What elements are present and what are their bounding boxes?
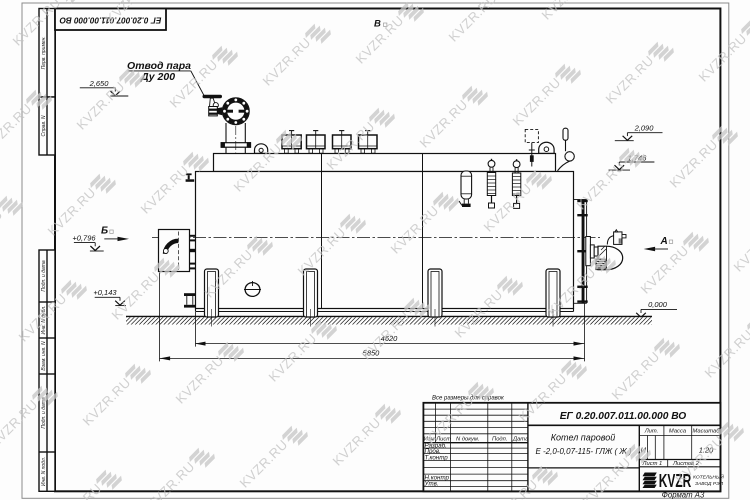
svg-text:KVZR.RU: KVZR.RU <box>0 397 41 451</box>
svg-text:KVZR.RU: KVZR.RU <box>109 269 163 323</box>
svg-text:Масса: Масса <box>669 429 687 435</box>
svg-text:KVZR.RU: KVZR.RU <box>138 163 192 217</box>
svg-text:Б: Б <box>101 226 108 237</box>
svg-text:Формат А3: Формат А3 <box>662 491 705 500</box>
svg-text:2,650: 2,650 <box>89 79 110 88</box>
svg-text:Подп. и дата: Подп. и дата <box>41 260 47 292</box>
svg-text:KVZR.RU: KVZR.RU <box>696 31 750 85</box>
svg-text:Лист 1: Лист 1 <box>642 461 663 467</box>
svg-text:KVZR.RU: KVZR.RU <box>266 331 320 385</box>
svg-text:Утв.: Утв. <box>424 481 439 488</box>
svg-text:KVZR.RU: KVZR.RU <box>0 207 6 261</box>
svg-text:Справ. N: Справ. N <box>41 115 47 136</box>
svg-text:ЕГ 0.20.007.011.00.000 ВО: ЕГ 0.20.007.011.00.000 ВО <box>560 411 687 422</box>
svg-text:KVZR.RU: KVZR.RU <box>702 327 750 381</box>
svg-text:KVZR.RU: KVZR.RU <box>510 75 564 129</box>
svg-text:KVZR.RU: KVZR.RU <box>731 221 750 275</box>
svg-text:KVZR.RU: KVZR.RU <box>80 375 134 429</box>
svg-text:KVZR.RU: KVZR.RU <box>0 101 35 155</box>
svg-text:KVZR.RU: KVZR.RU <box>667 137 721 191</box>
svg-text:KVZR.RU: KVZR.RU <box>574 159 628 213</box>
svg-text:KVZR.RU: KVZR.RU <box>144 459 198 500</box>
svg-text:KVZR.RU: KVZR.RU <box>237 437 291 491</box>
svg-text:KVZR.RU: KVZR.RU <box>609 349 663 403</box>
svg-text:Е -2,0-0,07-115- ГЛЖ ( Ж ): Е -2,0-0,07-115- ГЛЖ ( Ж ) <box>535 447 631 456</box>
svg-text:Т.контр: Т.контр <box>425 455 449 462</box>
svg-text:0,000: 0,000 <box>648 300 668 309</box>
svg-text:Дата: Дата <box>512 437 529 443</box>
svg-text:KVZR.RU: KVZR.RU <box>603 53 657 107</box>
svg-text:Котел паровой: Котел паровой <box>551 433 616 443</box>
svg-text:KVZR.RU: KVZR.RU <box>330 415 384 469</box>
svg-text:+0,143: +0,143 <box>93 288 117 297</box>
svg-text:Перв. примен.: Перв. примен. <box>41 36 47 69</box>
svg-text:Подп.: Подп. <box>492 437 507 443</box>
svg-text:Инв. N подл.: Инв. N подл. <box>41 457 47 486</box>
svg-text:KVZR.RU: KVZR.RU <box>45 185 99 239</box>
svg-text:А: А <box>660 236 668 247</box>
svg-text:ЗАВОД РЭП: ЗАВОД РЭП <box>695 481 724 487</box>
svg-text:Лит.: Лит. <box>644 429 659 435</box>
svg-text:KVZR.RU: KVZR.RU <box>417 97 471 151</box>
svg-text:KVZR.RU: KVZR.RU <box>446 0 500 45</box>
svg-text:Взам. инв. N: Взам. инв. N <box>41 341 47 371</box>
svg-text:KVZR.RU: KVZR.RU <box>260 35 314 89</box>
svg-text:Ду 200: Ду 200 <box>140 71 175 83</box>
svg-text:N докум.: N докум. <box>456 437 479 443</box>
svg-text:+0,796: +0,796 <box>72 234 96 243</box>
svg-text:2,090: 2,090 <box>634 124 655 133</box>
svg-text:KVZR.RU: KVZR.RU <box>173 353 227 407</box>
svg-text:KVZR.RU: KVZR.RU <box>638 243 692 297</box>
